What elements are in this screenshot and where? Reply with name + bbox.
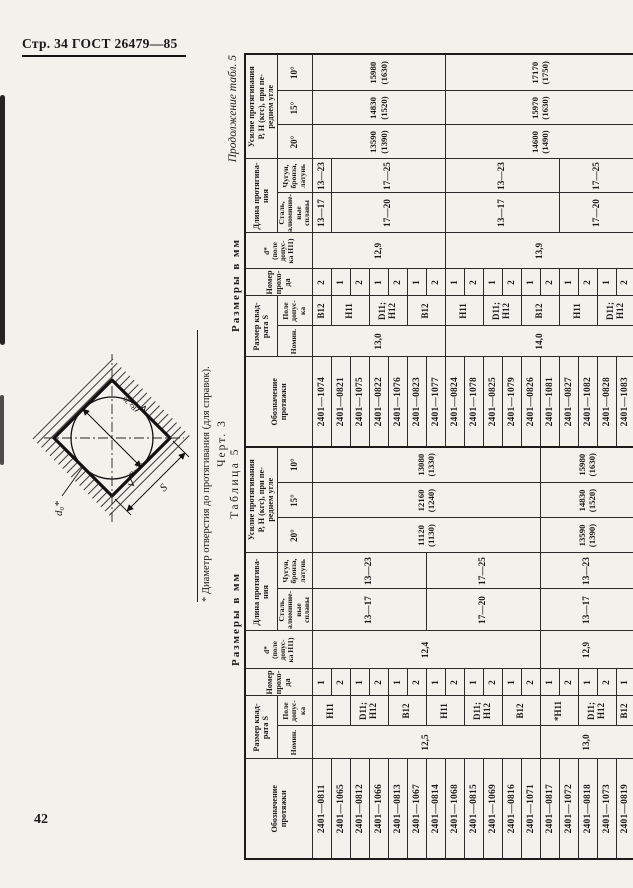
- cell-designation: 2401—1068: [445, 759, 464, 859]
- cell-pass-number: 1: [331, 269, 350, 296]
- cell-tolerance: D11; Н12: [350, 696, 388, 726]
- col-header-steel: Сталь, алюминие- вые сплавы: [277, 589, 312, 631]
- cell-pass-number: 2: [331, 669, 350, 696]
- cell-designation: 2401—0822: [369, 357, 388, 447]
- cell-designation: 2401—0813: [388, 759, 407, 859]
- cell-designation: 2401—1072: [559, 759, 578, 859]
- data-table: Обозначение протяжкиРазмер квад- рата SН…: [244, 445, 633, 860]
- cell-designation: 2401—1081: [540, 357, 559, 447]
- cell-length-iron: 13—23: [540, 553, 633, 589]
- cell-designation: 2401—1073: [597, 759, 616, 859]
- cell-pass-number: 2: [578, 269, 597, 296]
- cell-designation: 2401—0812: [350, 759, 369, 859]
- col-header-size: Размер квад- рата S: [245, 696, 277, 759]
- cell-pass-number: 1: [312, 669, 331, 696]
- cell-pass-number: 2: [407, 669, 426, 696]
- cell-nominal: 13,0: [540, 726, 633, 759]
- cell-designation: 2401—1077: [426, 357, 445, 447]
- cell-tolerance: D11; Н12: [483, 296, 521, 326]
- cell-pass-number: 1: [407, 269, 426, 296]
- cell-nominal: 12,5: [312, 726, 540, 759]
- cell-designation: 2401—1075: [350, 357, 369, 447]
- cell-force-20: 14600 (1490): [445, 125, 633, 159]
- cell-tolerance: В12: [521, 296, 559, 326]
- col-header-pass: Номер прохо- да: [245, 269, 312, 296]
- cross-section-drawing: d₀* S Rz 20 Rz 20: [20, 328, 196, 558]
- table-5: Обозначение протяжкиРазмер квад- рата SН…: [244, 447, 633, 860]
- cell-tolerance: В12: [312, 296, 331, 326]
- cell-designation: 2401—0827: [559, 357, 578, 447]
- cell-designation: 2401—0824: [445, 357, 464, 447]
- cell-designation: 2401—1065: [331, 759, 350, 859]
- cell-designation: 2401—0821: [331, 357, 350, 447]
- cell-tolerance: Н11: [312, 696, 350, 726]
- col-header-20deg: 20°: [277, 518, 312, 553]
- cell-length-iron: 13—23: [312, 553, 426, 589]
- cell-pass-number: 2: [540, 269, 559, 296]
- cell-designation: 2401—1079: [502, 357, 521, 447]
- cell-tolerance: В12: [502, 696, 540, 726]
- caption-table-5-continuation: Продолжение табл. 5: [227, 55, 239, 248]
- cell-designation: 2401—0828: [597, 357, 616, 447]
- cell-force-15: 15970 (1630): [445, 91, 633, 125]
- cell-designation: 2401—1066: [369, 759, 388, 859]
- cell-pass-number: 1: [540, 669, 559, 696]
- col-header-15deg: 15°: [277, 483, 312, 518]
- table-row: 2401—081112,5Н11112,413—1713—2311120 (11…: [312, 446, 331, 859]
- cell-length-iron: 13—23: [445, 159, 559, 193]
- col-header-20deg: 20°: [277, 125, 312, 159]
- cell-force-20: 11120 (1130): [312, 518, 540, 553]
- cell-tolerance: Н11: [331, 296, 369, 326]
- col-header-tolerance: Поле допус- ка: [277, 696, 312, 726]
- cell-designation: 2401—1071: [521, 759, 540, 859]
- cell-tolerance: D11; Н12: [464, 696, 502, 726]
- cell-force-15: 12160 (1240): [312, 483, 540, 518]
- cell-d: 12,4: [312, 631, 540, 669]
- cell-force-10: 15980 (1630): [312, 54, 445, 91]
- cell-pass-number: 1: [616, 669, 633, 696]
- rotated-content: d₀* S Rz 20 Rz 20 * Диаметр отверстия до…: [0, 0, 633, 888]
- col-header-d: d* (поле допус- ка Н11): [245, 233, 312, 269]
- cell-designation: 2401—1067: [407, 759, 426, 859]
- col-header-steel: Сталь, алюминие- вые сплавы: [277, 193, 312, 233]
- cell-length-steel: 17—20: [426, 589, 540, 631]
- cell-pass-number: 2: [350, 269, 369, 296]
- cell-pass-number: 2: [521, 669, 540, 696]
- data-table: Обозначение протяжкиРазмер квад- рата SН…: [244, 53, 633, 448]
- cell-pass-number: 2: [559, 669, 578, 696]
- cell-pass-number: 1: [521, 269, 540, 296]
- cell-nominal: 13,0: [312, 326, 445, 357]
- cell-pass-number: 2: [388, 269, 407, 296]
- cell-pass-number: 1: [483, 269, 502, 296]
- col-header-15deg: 15°: [277, 91, 312, 125]
- cell-force-15: 14830 (1520): [540, 483, 633, 518]
- col-header-designation: Обозначение протяжки: [245, 759, 312, 859]
- cell-tolerance: В12: [388, 696, 426, 726]
- col-header-iron: Чугун, бронза, латунь: [277, 553, 312, 589]
- cell-length-steel: 13—17: [540, 589, 633, 631]
- cell-length-steel: 17—20: [559, 193, 633, 233]
- col-header-iron: Чугун, бронза, латунь: [277, 159, 312, 193]
- cell-designation: 2401—1083: [616, 357, 633, 447]
- figure-caption: Черт. 3: [216, 328, 228, 558]
- caption-table-5: Таблица 5: [229, 447, 241, 555]
- table-row: 2401—081713,0*Н11112,913—1713—2313590 (1…: [540, 446, 559, 859]
- cell-pass-number: 1: [445, 269, 464, 296]
- cell-d: 12,9: [312, 233, 445, 269]
- cell-designation: 2401—1069: [483, 759, 502, 859]
- cell-designation: 2401—1078: [464, 357, 483, 447]
- cell-designation: 2401—0811: [312, 759, 331, 859]
- cell-pass-number: 1: [597, 269, 616, 296]
- cell-tolerance: D11; Н12: [369, 296, 407, 326]
- cell-pass-number: 2: [616, 269, 633, 296]
- col-header-length: Длина протягива- ния: [245, 553, 277, 631]
- cell-length-steel: 17—20: [331, 193, 445, 233]
- cell-length-steel: 13—17: [312, 589, 426, 631]
- cell-pass-number: 2: [369, 669, 388, 696]
- col-header-pass: Номер прохо- да: [245, 669, 312, 696]
- cell-pass-number: 1: [464, 669, 483, 696]
- footnote-rule: [197, 330, 198, 602]
- col-header-length: Длина протягива- ния: [245, 159, 277, 233]
- cell-pass-number: 2: [445, 669, 464, 696]
- cell-length-iron: 17—25: [331, 159, 445, 193]
- cell-length-iron: 17—25: [559, 159, 633, 193]
- cell-d: 13,9: [445, 233, 633, 269]
- cell-pass-number: 1: [578, 669, 597, 696]
- col-header-10deg: 10°: [277, 446, 312, 483]
- cell-pass-number: 2: [464, 269, 483, 296]
- document-page: Стр. 34 ГОСТ 26479—85 42 d₀*: [0, 0, 633, 888]
- col-header-d: d* (поле допус- ка Н11): [245, 631, 312, 669]
- cell-tolerance: D11; Н12: [578, 696, 616, 726]
- table-row: 2401—107413,0В12212,913—1713—2313590 (13…: [312, 54, 331, 447]
- cell-designation: 2401—0826: [521, 357, 540, 447]
- cell-designation: 2401—1074: [312, 357, 331, 447]
- cell-designation: 2401—0825: [483, 357, 502, 447]
- cell-pass-number: 2: [312, 269, 331, 296]
- cell-length-steel: 13—17: [445, 193, 559, 233]
- table-row: 2401—082414,0Н11113,913—1713—2314600 (14…: [445, 54, 464, 447]
- cell-force-10: 13080 (1330): [312, 446, 540, 483]
- cell-force-20: 13590 (1390): [312, 125, 445, 159]
- cell-length-steel: 13—17: [312, 193, 331, 233]
- cell-tolerance: Н11: [445, 296, 483, 326]
- col-header-tolerance: Поле допус- ка: [277, 296, 312, 326]
- col-header-designation: Обозначение протяжки: [245, 357, 312, 447]
- cell-designation: 2401—0816: [502, 759, 521, 859]
- col-header-force: Усилие протягивания Р, Н (кгс), при пе- …: [245, 446, 277, 553]
- cell-designation: 2401—0818: [578, 759, 597, 859]
- figure-footnote: * Диаметр отверстия до протягивания (для…: [201, 302, 212, 602]
- cell-nominal: 14,0: [445, 326, 633, 357]
- caption-dimensions-left: Размеры в мм: [230, 572, 242, 666]
- col-header-size: Размер квад- рата S: [245, 296, 277, 357]
- cell-force-10: 15980 (1630): [540, 446, 633, 483]
- table-5-continuation: Обозначение протяжкиРазмер квад- рата SН…: [244, 55, 633, 448]
- cell-tolerance: Н11: [559, 296, 597, 326]
- cell-designation: 2401—0819: [616, 759, 633, 859]
- col-header-nominal: Номин.: [277, 326, 312, 357]
- cell-force-20: 13590 (1390): [540, 518, 633, 553]
- cell-pass-number: 1: [369, 269, 388, 296]
- cell-pass-number: 1: [502, 669, 521, 696]
- col-header-nominal: Номин.: [277, 726, 312, 759]
- cell-designation: 2401—0817: [540, 759, 559, 859]
- col-header-force: Усилие протягивания Р, Н (кгс), при пе- …: [245, 54, 277, 159]
- cell-length-iron: 13—23: [312, 159, 331, 193]
- caption-dimensions-right: Размеры в мм: [230, 238, 242, 332]
- cell-tolerance: В12: [407, 296, 445, 326]
- cell-length-iron: 17—25: [426, 553, 540, 589]
- cell-designation: 2401—0823: [407, 357, 426, 447]
- cell-tolerance: В12: [616, 696, 633, 726]
- cell-force-15: 14830 (1520): [312, 91, 445, 125]
- diameter-label: d₀*: [53, 501, 65, 516]
- cell-designation: 2401—1076: [388, 357, 407, 447]
- cell-pass-number: 1: [388, 669, 407, 696]
- cell-designation: 2401—0814: [426, 759, 445, 859]
- col-header-10deg: 10°: [277, 54, 312, 91]
- cell-pass-number: 2: [502, 269, 521, 296]
- cell-designation: 2401—1082: [578, 357, 597, 447]
- cell-designation: 2401—0815: [464, 759, 483, 859]
- cell-pass-number: 1: [350, 669, 369, 696]
- cell-pass-number: 2: [597, 669, 616, 696]
- cell-pass-number: 1: [426, 669, 445, 696]
- cell-force-10: 17170 (1750): [445, 54, 633, 91]
- cell-tolerance: Н11: [426, 696, 464, 726]
- cell-pass-number: 2: [426, 269, 445, 296]
- cell-pass-number: 1: [559, 269, 578, 296]
- cell-pass-number: 2: [483, 669, 502, 696]
- cell-tolerance: D11; Н12: [597, 296, 633, 326]
- cell-d: 12,9: [540, 631, 633, 669]
- s-dimension-label: S: [158, 481, 171, 494]
- cell-tolerance: *Н11: [540, 696, 578, 726]
